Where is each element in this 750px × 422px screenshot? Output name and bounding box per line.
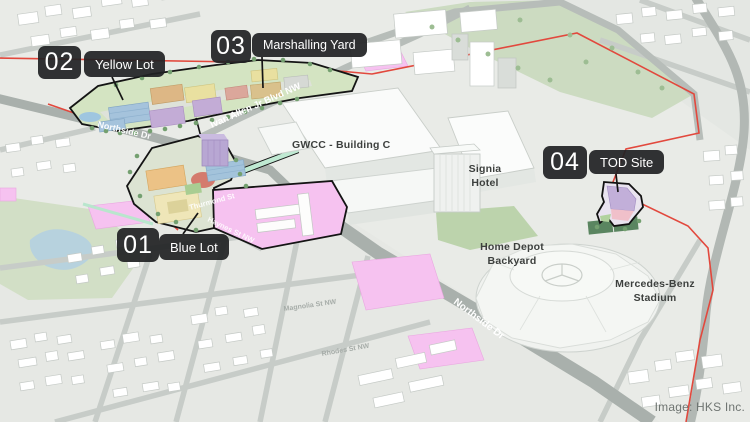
site-01-number-badge: 01: [117, 228, 159, 262]
signia-hotel-label: Signia Hotel: [455, 162, 515, 190]
site-03-number-badge: 03: [211, 30, 251, 63]
site-02-number-badge: 02: [38, 46, 81, 79]
site-02-name-pill: Yellow Lot: [84, 51, 165, 77]
home-depot-backyard-label: Home Depot Backyard: [462, 240, 562, 268]
gwcc-building-c-label: GWCC - Building C: [292, 138, 390, 152]
image-attribution: Image: HKS Inc.: [655, 400, 745, 414]
site-03-name-pill: Marshalling Yard: [252, 33, 367, 57]
site-04-name-pill: TOD Site: [589, 150, 664, 174]
site-plan-image: Northside Dr Ivan Allen Jr Blvd NW Thurm…: [0, 0, 750, 422]
site-04-number-badge: 04: [543, 146, 587, 179]
site-01-name-pill: Blue Lot: [159, 234, 229, 260]
mercedes-benz-stadium-label: Mercedes-Benz Stadium: [603, 277, 707, 305]
